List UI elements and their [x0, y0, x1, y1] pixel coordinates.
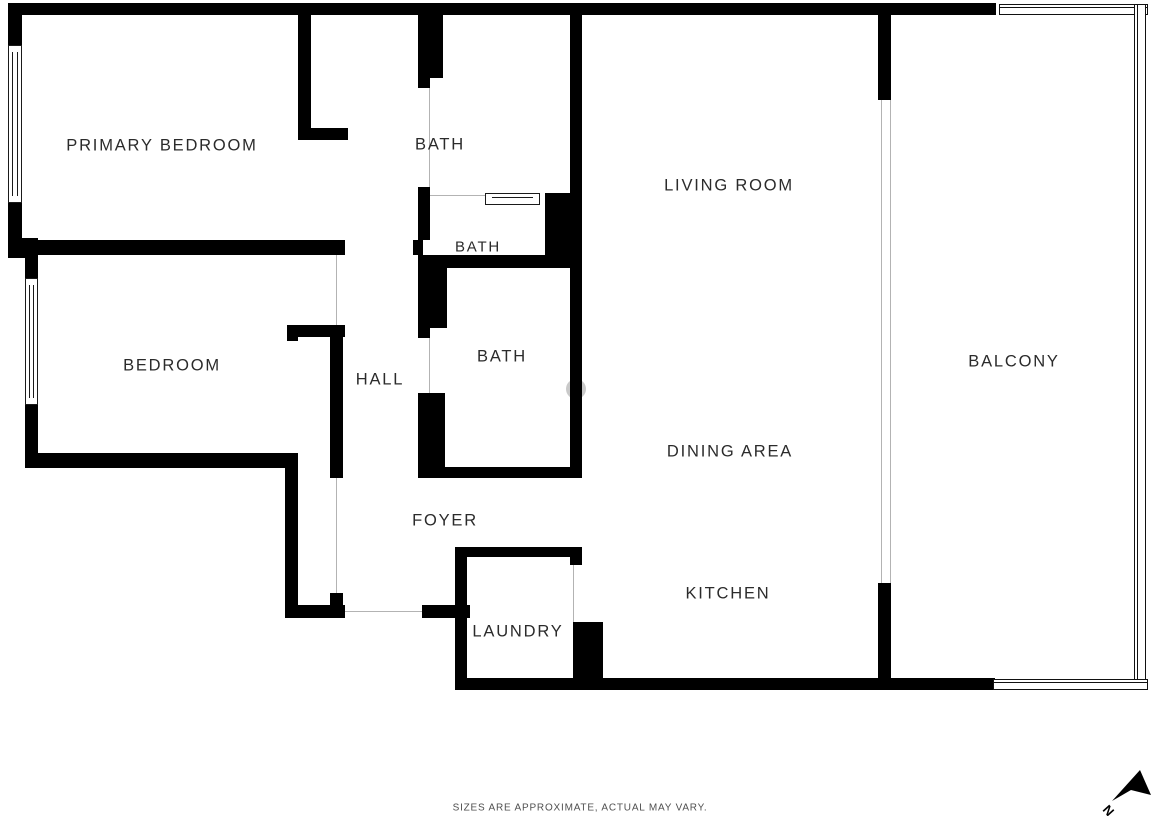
sliding-door-line: [881, 100, 882, 583]
wall: [418, 268, 447, 328]
wall: [455, 547, 582, 557]
floor-plan: PRIMARY BEDROOM BATH LIVING ROOM BATH BE…: [0, 0, 1160, 819]
north-arrow-icon: [1112, 770, 1151, 801]
window-panes: [492, 197, 533, 201]
door-opening-line: [336, 478, 337, 593]
room-label-primary-bedroom: PRIMARY BEDROOM: [66, 137, 257, 156]
wall: [418, 467, 582, 478]
sliding-door-line: [890, 100, 891, 583]
room-label-laundry: LAUNDRY: [472, 623, 563, 642]
wall: [287, 325, 298, 341]
room-label-kitchen: KITCHEN: [685, 585, 770, 604]
north-arrow: N: [1090, 758, 1156, 816]
north-label: N: [1100, 802, 1117, 816]
wall: [413, 240, 423, 255]
wall: [418, 328, 430, 338]
wall: [573, 622, 603, 678]
wall: [418, 15, 443, 78]
room-label-hall: HALL: [356, 371, 404, 390]
door-opening-line: [573, 565, 574, 622]
window: [8, 45, 22, 203]
balcony-railing: [999, 4, 1148, 15]
door-opening-line: [430, 195, 485, 196]
wall: [8, 3, 22, 45]
room-label-foyer: FOYER: [412, 512, 478, 531]
wall: [298, 128, 348, 140]
room-label-bath-ensuite: BATH: [415, 136, 465, 155]
room-label-bath-powder: BATH: [455, 239, 501, 256]
window-panes: [29, 285, 34, 398]
door-opening-line: [429, 338, 430, 393]
wall: [25, 453, 297, 468]
wall: [8, 240, 345, 255]
wall: [878, 583, 891, 678]
wall: [570, 547, 582, 565]
wall: [455, 678, 995, 690]
room-label-balcony: BALCONY: [968, 353, 1059, 372]
wall: [455, 547, 467, 690]
wall: [418, 393, 445, 470]
balcony-railing: [1134, 4, 1146, 690]
wall: [330, 593, 343, 607]
room-label-living-room: LIVING ROOM: [664, 177, 794, 196]
window-panes: [12, 52, 18, 196]
wall: [285, 453, 298, 618]
wall: [8, 3, 996, 15]
wall: [330, 325, 343, 478]
entry-opening-line: [345, 611, 422, 612]
room-label-dining-area: DINING AREA: [667, 443, 793, 462]
room-label-bath-hall: BATH: [477, 348, 527, 367]
window: [485, 193, 540, 205]
balcony-railing: [993, 679, 1148, 690]
wall: [570, 15, 582, 478]
wall: [298, 15, 311, 140]
size-disclaimer: SIZES ARE APPROXIMATE, ACTUAL MAY VARY.: [453, 803, 708, 814]
room-label-bedroom: BEDROOM: [123, 357, 221, 376]
wall: [878, 15, 891, 100]
wall: [418, 187, 430, 240]
wall: [418, 78, 430, 88]
window: [25, 278, 38, 405]
door-opening-line: [336, 255, 337, 325]
